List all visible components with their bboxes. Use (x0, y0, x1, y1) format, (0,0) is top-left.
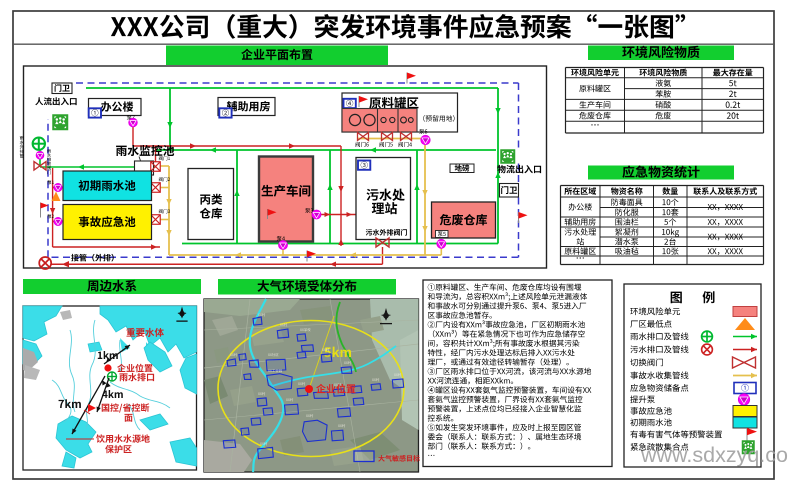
svg-text:www.sdxzyq.com: www.sdxzyq.com (640, 443, 789, 467)
